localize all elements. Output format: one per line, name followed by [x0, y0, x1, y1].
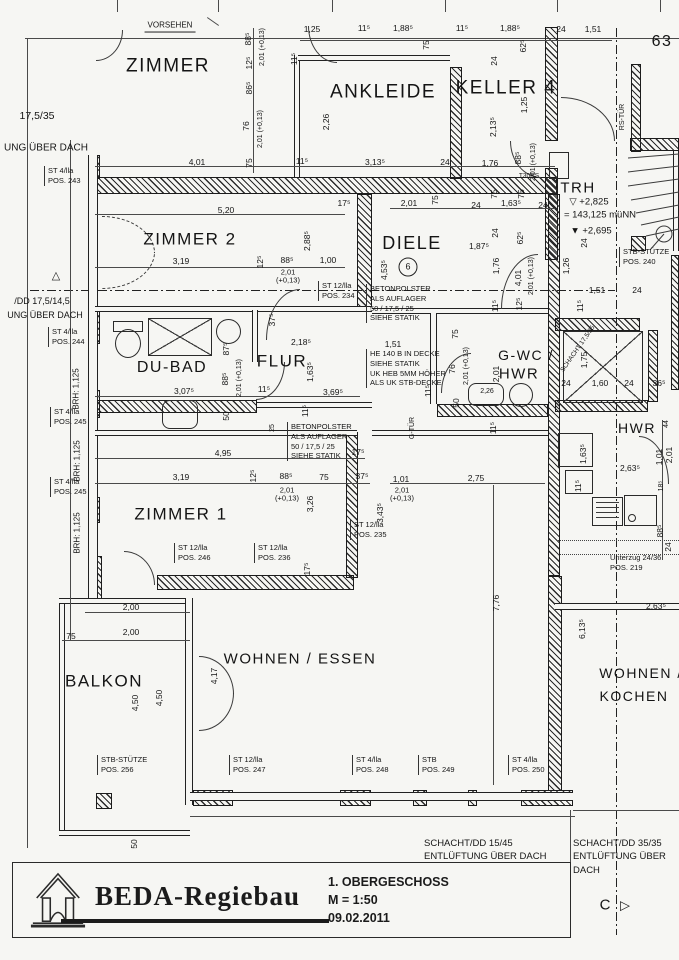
- dimension-label: 11⁵: [358, 24, 370, 34]
- beam-line: [558, 540, 679, 541]
- he140-note: HE 140 B IN DECKE SIEHE STATIK UK HEB 5M…: [366, 349, 446, 388]
- room-label-dubad: DU-BAD: [137, 359, 207, 377]
- pos-label: ST 4/lla POS. 248: [352, 755, 389, 775]
- balcony-edge: [59, 830, 190, 836]
- shaft-cross: [564, 332, 642, 402]
- dimension-label: 75: [517, 189, 527, 198]
- dimension-label: 2,00: [123, 603, 140, 613]
- dimension-label: 2,88⁵: [303, 231, 313, 251]
- vorsehen-note: VORSEHEN: [145, 22, 196, 33]
- dimension-label: 44: [663, 420, 671, 428]
- room-label-flur: FLUR: [257, 351, 307, 370]
- dim-line: [253, 28, 254, 173]
- schacht-note: SCHACHT/DD 35/35 ENTLÜFTUNG ÜBER DACH: [573, 837, 679, 877]
- dimension-label: 3,13⁵: [365, 158, 385, 168]
- axis-triangle-marker: △: [52, 270, 60, 282]
- dimension-label: 24: [490, 56, 500, 65]
- dimension-label: 50: [452, 398, 462, 407]
- room-label-zimmer: ZIMMER: [126, 55, 210, 76]
- dimension-label: 24: [556, 25, 565, 35]
- title-block: BEDA-Regiebau 1. OBERGESCHOSS M = 1:50 0…: [12, 862, 571, 938]
- dimension-label: 3,07⁵: [174, 387, 194, 397]
- dimension-label: 37⁵: [268, 314, 278, 327]
- section-marker-letter: C: [600, 898, 611, 915]
- wall-segment: [95, 177, 557, 194]
- margin-note: UNG ÜBER DACH: [4, 142, 88, 153]
- dim-line: [95, 483, 370, 484]
- dimension-label: 11⁵: [489, 422, 499, 434]
- room-label-diele: DIELE: [382, 233, 442, 253]
- level-mark: ▽ +2,825: [569, 198, 608, 209]
- dimension-label: 2,01: [401, 199, 418, 209]
- dimension-label: 86⁵: [245, 82, 255, 95]
- dimension-label: 1,01: [393, 475, 410, 485]
- shaft-box: [563, 331, 643, 403]
- dimension-label: 1,51: [585, 25, 602, 35]
- dimension-label: 11⁵: [296, 157, 308, 167]
- dimension-label: 2,75: [468, 474, 485, 484]
- dimension-label: 88⁵: [514, 152, 524, 165]
- room-label-gwc: G-WC /: [498, 348, 554, 364]
- betonpolster-note: BETONPOLSTER ALS AUFLAGER 50 / 17,5 / 25…: [366, 284, 431, 323]
- sill-height-label: BRH: 1,125: [74, 512, 83, 553]
- sill-height-label: BRH: 1,125: [74, 440, 83, 481]
- pos-label: ST 12/lla POS. 246: [174, 543, 211, 563]
- tick-mark: [117, 0, 118, 12]
- dimension-label: 2,00: [123, 628, 140, 638]
- dimension-label: 2,26: [480, 388, 494, 396]
- wall-segment: [648, 330, 658, 402]
- tick-mark: [218, 0, 219, 12]
- door-arc: [561, 97, 615, 141]
- dimension-label: 2,01 (+0,13): [528, 257, 536, 295]
- floor-plan-sheet: ZIMMERANKLEIDEKELLER 4ZIMMER 2DIELETRHDU…: [0, 0, 679, 960]
- dimension-label: 4,53⁵: [380, 260, 390, 280]
- appliance-grill: [596, 502, 619, 521]
- room-label-zimmer2: ZIMMER 2: [143, 229, 236, 248]
- tick-mark: [557, 0, 558, 12]
- level-mark: = 143,125 müNN: [564, 211, 636, 222]
- room-label-trh: TRH: [560, 181, 595, 198]
- dimension-label: 17⁵: [303, 563, 313, 576]
- dimension-label: 24: [624, 379, 633, 389]
- window-band: [190, 792, 573, 801]
- pos-label: ST 12/lla POS. 247: [229, 755, 266, 775]
- pos-label: ST 4/lla POS. 245: [50, 477, 87, 497]
- dimension-label: 24: [561, 379, 570, 389]
- dimension-label: 76: [448, 364, 458, 373]
- drawing-date: 09.02.2011: [328, 911, 390, 925]
- dimension-label: 24: [440, 158, 449, 168]
- pos-label: ST 4/lla POS. 243: [44, 166, 81, 186]
- door-arc: [124, 551, 155, 585]
- room-label-wohnen-essen: WOHNEN / ESSEN: [224, 652, 377, 669]
- dimension-label: 62⁵: [519, 40, 529, 53]
- axis-line: [616, 28, 617, 935]
- dimension-label: 75: [66, 632, 75, 642]
- dimension-label: 2,01 (+0,13): [463, 347, 471, 385]
- shower-cross: [149, 319, 211, 355]
- pos-label: STB POS. 249: [418, 755, 455, 775]
- dimension-label: 24: [471, 201, 480, 211]
- dimension-label: 88⁵: [221, 373, 231, 386]
- dimension-label: 2,01: [492, 366, 502, 383]
- dimension-label: 25: [269, 424, 277, 432]
- room-label-gwc-hwr: HWR: [499, 367, 539, 384]
- dim-line: [95, 396, 360, 397]
- washbasin: [216, 319, 241, 344]
- dimension-label: 3,19: [173, 257, 190, 267]
- wall-segment: [671, 255, 679, 390]
- pos-label: ST 4/lla POS. 245: [50, 407, 87, 427]
- dimension-label: 1,25: [304, 25, 321, 35]
- dimension-label: 1,51: [589, 286, 606, 296]
- dimension-label: 11⁵: [258, 385, 270, 395]
- dimension-label: 76: [242, 121, 252, 130]
- wall-thin: [95, 306, 372, 312]
- dim-line: [493, 485, 494, 785]
- dimension-label: 11⁵: [574, 480, 584, 492]
- sheet-number: 63: [652, 33, 673, 51]
- dimension-label: 4,01: [514, 270, 524, 287]
- dimension-label: 2,01 (+0,13): [390, 487, 414, 504]
- toilet-tank: [113, 321, 143, 332]
- dimension-label: 75: [490, 189, 500, 198]
- dimension-label: 11⁵: [491, 300, 501, 312]
- dimension-label: 1,76: [492, 258, 502, 275]
- tick-mark: [445, 0, 446, 12]
- dimension-label: 24: [664, 542, 674, 551]
- wall-segment: [157, 575, 354, 590]
- drawing-scale: M = 1:50: [328, 893, 378, 907]
- drawing-title: 1. OBERGESCHOSS: [328, 875, 449, 889]
- dimension-label: 36⁵: [653, 379, 666, 389]
- dimension-label: 2,01 (+0,13): [259, 28, 267, 66]
- pos-label: STB-STÜTZE POS. 256: [97, 755, 147, 775]
- dimension-label: 24: [580, 238, 590, 247]
- dim-line: [300, 40, 612, 41]
- dimension-label: 11⁵: [301, 405, 311, 417]
- room-label-wohnen-kochen-2: KOCHEN: [600, 689, 669, 705]
- dimension-label: 2,26: [322, 114, 332, 131]
- dimension-label: 88⁵: [656, 525, 666, 538]
- toilet: [509, 383, 533, 407]
- dimension-label: 12⁵: [245, 57, 255, 70]
- dimension-label: 1,00: [320, 256, 337, 266]
- dimension-label: 17⁵: [338, 199, 351, 209]
- dimension-label: 12⁵: [256, 256, 266, 269]
- dimension-label: 75: [422, 40, 432, 49]
- company-name: BEDA-Regiebau: [95, 881, 300, 912]
- column-symbol: [96, 793, 112, 809]
- dimension-label: 1,60: [592, 379, 609, 389]
- wall-thin: [257, 402, 372, 408]
- dimension-label: 6,13⁵: [578, 619, 588, 639]
- dimension-label: 11⁵: [576, 300, 586, 312]
- dimension-label: 1,63⁵: [306, 362, 316, 382]
- dimension-label: 1,88⁵: [500, 24, 520, 34]
- stair-run: [628, 150, 679, 250]
- dimension-label: 1,76: [482, 159, 499, 169]
- dimension-label: 50: [130, 839, 140, 848]
- dimension-label: 7,76: [492, 595, 502, 612]
- dimension-label: 1,63⁵: [501, 199, 521, 209]
- pos-label: ST 12/lla POS. 236: [254, 543, 291, 563]
- door-arc: [199, 693, 234, 731]
- leader-line: [207, 17, 219, 26]
- shower: [148, 318, 212, 356]
- dimension-label: 24: [491, 228, 501, 237]
- dimension-label: 88⁵: [244, 33, 254, 46]
- door-arc: [96, 30, 123, 61]
- dimension-label: 2,63⁵: [646, 602, 666, 612]
- dimension-label: 1,75: [580, 352, 590, 369]
- unterzug-note: Unterzug 24/36 POS. 219: [610, 553, 661, 573]
- sill-height-label: BRH: 1,125: [73, 368, 82, 409]
- dimension-label: 88⁵: [280, 472, 293, 482]
- company-underline: [61, 919, 329, 923]
- dimension-label: 2,18⁵: [291, 338, 311, 348]
- dimension-label: 3,26: [306, 496, 316, 513]
- schacht-note: SCHACHT/DD 15/45 ENTLÜFTUNG ÜBER DACH: [424, 837, 546, 864]
- dimension-label: 2,01 (+0,13): [257, 110, 265, 148]
- section-marker-arrow: ▷: [620, 899, 630, 914]
- margin-note: /DD 17,5/14,5: [14, 296, 70, 306]
- pos-label: ST 12/lla POS. 235: [350, 520, 387, 540]
- dimension-label: 24: [632, 286, 641, 296]
- frame-line: [573, 810, 679, 811]
- pos-label: STB-STÜTZE POS. 240: [619, 247, 669, 267]
- room-label-ankleide: ANKLEIDE: [330, 81, 436, 102]
- dim-line: [62, 640, 190, 641]
- dimension-label: 11⁵: [456, 24, 468, 34]
- dimension-label: 4,01: [189, 158, 206, 168]
- dimension-label: 4,95: [215, 449, 232, 459]
- door-arc-dashed: [102, 252, 155, 289]
- dimension-label: 75: [451, 329, 461, 338]
- tick-mark: [332, 0, 333, 12]
- betonpolster-note: BETONPOLSTER ALS AUFLAGER 50 / 17,5 / 25…: [287, 422, 352, 461]
- dimension-label: 87⁵: [222, 343, 232, 356]
- dimension-label: 2,01 (+0,13): [276, 269, 300, 286]
- dimension-label: 5,20: [218, 206, 235, 216]
- dimension-label: 24: [538, 201, 547, 211]
- dimension-label: 88⁵: [281, 256, 294, 266]
- dimension-label: 37⁵: [356, 472, 369, 482]
- dimension-label: 2,63⁵: [620, 464, 640, 474]
- dimension-label: 1,87⁵: [469, 242, 489, 252]
- level-mark: ▼ +2,695: [570, 227, 611, 238]
- margin-note: 17,5/35: [19, 111, 54, 123]
- appliance: [592, 497, 623, 526]
- dimension-label: 50: [222, 411, 232, 420]
- dimension-label: 17⁵: [352, 448, 365, 458]
- room-number-badge: 6: [399, 258, 418, 277]
- dimension-label: 75: [319, 473, 328, 483]
- dimension-label: 62⁵: [516, 232, 526, 245]
- door-tag: G-TÜR: [409, 417, 417, 439]
- dimension-label: 4,17: [210, 668, 220, 685]
- room-label-keller4: KELLER 4: [456, 77, 557, 98]
- dimension-label: 11⁵: [290, 53, 300, 65]
- dimension-label: 4,50: [155, 690, 165, 707]
- dimension-label: 1,25: [520, 97, 530, 114]
- pos-label: ST 4/lla POS. 244: [48, 327, 85, 347]
- frame-line: [190, 816, 575, 817]
- door-tag: RS-TÜR: [619, 104, 627, 130]
- wall-thin: [185, 598, 193, 805]
- dimension-label: 2,13⁵: [489, 117, 499, 137]
- appliance-knob: [628, 514, 636, 522]
- dim-line: [95, 267, 345, 268]
- dimension-label: 1,88⁵: [393, 24, 413, 34]
- exterior-wall: [88, 155, 98, 602]
- wall-thin: [372, 430, 548, 436]
- wall-segment: [555, 318, 640, 331]
- dimension-label: 75: [431, 195, 441, 204]
- room-label-balkon: BALKON: [65, 671, 143, 690]
- bathtub: [162, 400, 198, 429]
- dimension-label: 1,63⁵: [579, 444, 589, 464]
- pos-label: ST 12/lla POS. 234: [318, 281, 355, 301]
- dimension-label: 4,50: [131, 695, 141, 712]
- dimension-label: 75: [245, 158, 255, 167]
- dimension-label: 1,26: [562, 258, 572, 275]
- balcony-edge: [59, 598, 65, 835]
- room-label-hwr: HWR: [618, 421, 656, 437]
- dimension-label: 3,69⁵: [323, 388, 343, 398]
- dimension-label: 18⁵: [658, 481, 666, 492]
- room-label-zimmer1: ZIMMER 1: [134, 504, 227, 523]
- room-label-wohnen-kochen-1: WOHNEN /: [599, 666, 679, 682]
- wall-segment: [548, 194, 560, 576]
- dimension-label: 2,01 (+0,13): [530, 143, 538, 181]
- margin-note: UNG ÜBER DACH: [7, 310, 83, 320]
- toilet: [115, 329, 141, 358]
- dimension-label: 2,01 (+0,13): [275, 487, 299, 504]
- dimension-label: 3,19: [173, 473, 190, 483]
- dimension-label: 2,01 (+0,13): [236, 359, 244, 397]
- dimension-label: 12⁵: [515, 298, 525, 311]
- dimension-label: 2,01: [665, 447, 675, 464]
- frame-line: [25, 38, 679, 39]
- frame-line: [27, 38, 28, 848]
- dimension-label: 12⁵: [249, 470, 259, 483]
- pos-label: ST 4/lla POS. 250: [508, 755, 545, 775]
- tick-mark: [660, 0, 661, 12]
